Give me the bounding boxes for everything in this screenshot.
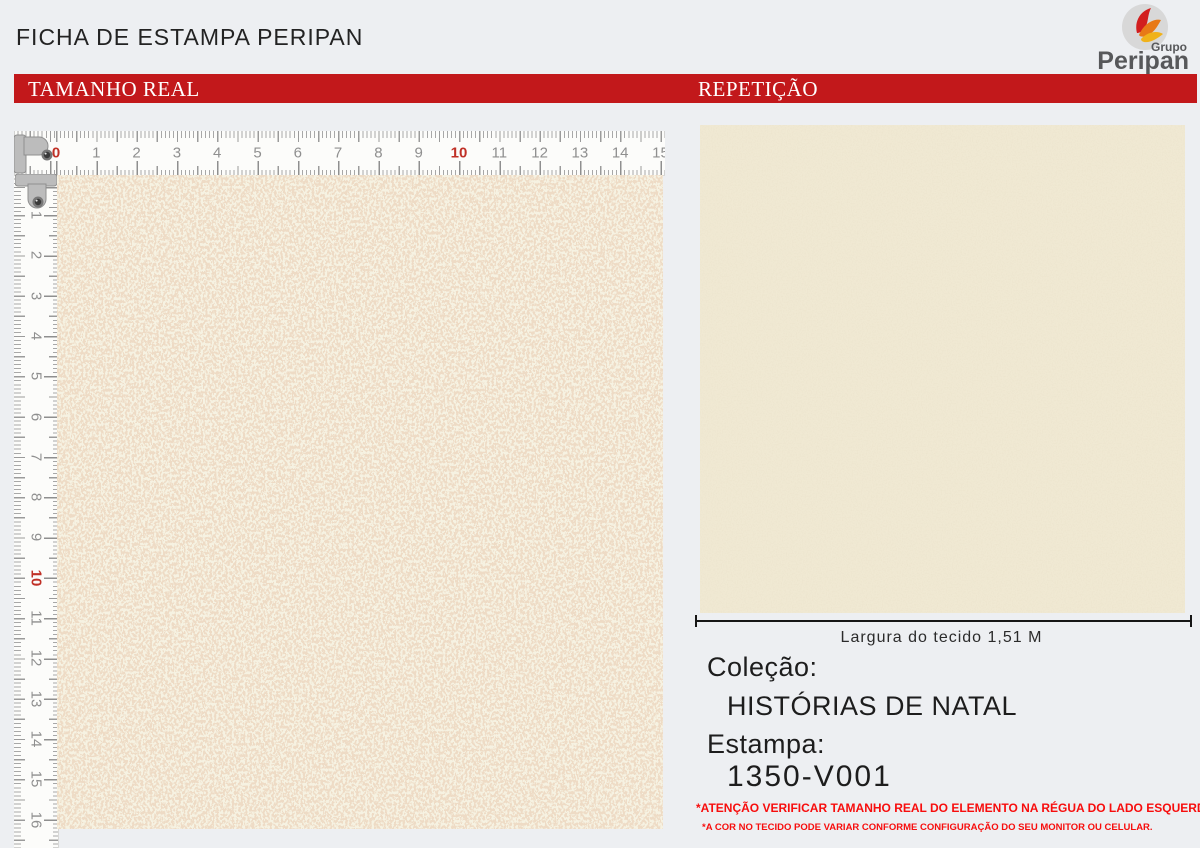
print-label: Estampa: bbox=[707, 729, 825, 760]
ruler-bracket-vertical bbox=[15, 174, 59, 236]
ruler-number: 10 bbox=[28, 569, 45, 586]
ruler-number: 14 bbox=[28, 731, 45, 748]
ruler-number: 7 bbox=[334, 145, 342, 162]
ruler-number: 2 bbox=[28, 251, 45, 259]
fine-texture bbox=[700, 125, 1185, 613]
ruler-ticks bbox=[14, 175, 25, 848]
ruler-number: 5 bbox=[253, 145, 261, 162]
section-banner: TAMANHO REAL REPETIÇÃO bbox=[14, 74, 1197, 103]
ruler-number: 4 bbox=[28, 332, 45, 340]
ruler-number: 9 bbox=[415, 145, 423, 162]
ruler-number: 12 bbox=[531, 145, 548, 162]
ruler-number: 6 bbox=[294, 145, 302, 162]
ruler-number: 11 bbox=[28, 610, 45, 626]
ruler-number: 16 bbox=[28, 811, 45, 828]
warning-color: *A COR NO TECIDO PODE VARIAR CONFORME CO… bbox=[702, 822, 1153, 833]
banner-label-real-size: TAMANHO REAL bbox=[28, 74, 200, 103]
ruler-number: 15 bbox=[652, 145, 665, 162]
ruler-number: 7 bbox=[28, 453, 45, 461]
fabric-width-measure-line bbox=[695, 615, 1192, 627]
fabric-swatch-repeat bbox=[700, 125, 1185, 613]
page-title: FICHA DE ESTAMPA PERIPAN bbox=[16, 24, 363, 51]
ruler-number: 14 bbox=[612, 145, 629, 162]
ruler-number: 13 bbox=[572, 145, 589, 162]
ruler-number: 12 bbox=[28, 650, 45, 667]
ruler-number: 5 bbox=[28, 372, 45, 380]
peripan-logo: Grupo Peripan bbox=[1098, 2, 1198, 74]
collection-label: Coleção: bbox=[707, 652, 818, 683]
print-code: 1350-V001 bbox=[727, 760, 892, 794]
ruler-number: 10 bbox=[451, 145, 468, 162]
horizontal-ruler: 0123456789101112131415 bbox=[14, 131, 665, 176]
ruler-ticks bbox=[14, 161, 665, 175]
ruler-bracket-horizontal bbox=[14, 134, 66, 174]
ruler-number: 4 bbox=[213, 145, 221, 162]
ruler-number: 3 bbox=[173, 145, 181, 162]
ruler-ticks bbox=[14, 131, 665, 142]
banner-label-repeat: REPETIÇÃO bbox=[698, 74, 818, 103]
fabric-width-label: Largura do tecido 1,51 M bbox=[695, 629, 1188, 647]
ruler-number: 1 bbox=[92, 145, 100, 162]
ruler-number: 6 bbox=[28, 412, 45, 420]
ruler-number: 13 bbox=[28, 690, 45, 707]
fabric-swatch-real-size bbox=[57, 175, 663, 829]
ruler-number: 3 bbox=[28, 291, 45, 299]
ruler-number: 11 bbox=[492, 145, 508, 162]
ruler-number: 8 bbox=[374, 145, 382, 162]
ruler-number: 9 bbox=[28, 533, 45, 541]
print-spec-sheet: FICHA DE ESTAMPA PERIPAN Grupo Peripan T… bbox=[0, 0, 1200, 848]
ruler-number: 15 bbox=[28, 771, 45, 788]
ruler-number: 8 bbox=[28, 493, 45, 501]
ruler-number: 2 bbox=[132, 145, 140, 162]
logo-name-text: Peripan bbox=[1098, 47, 1189, 74]
ruler-ticks bbox=[44, 175, 58, 848]
vertical-ruler: 12345678910111213141516 bbox=[14, 175, 59, 848]
collection-value: HISTÓRIAS DE NATAL bbox=[727, 691, 1017, 722]
warning-real-size: *ATENÇÃO VERIFICAR TAMANHO REAL DO ELEME… bbox=[696, 801, 1200, 815]
linen-texture bbox=[57, 175, 663, 829]
